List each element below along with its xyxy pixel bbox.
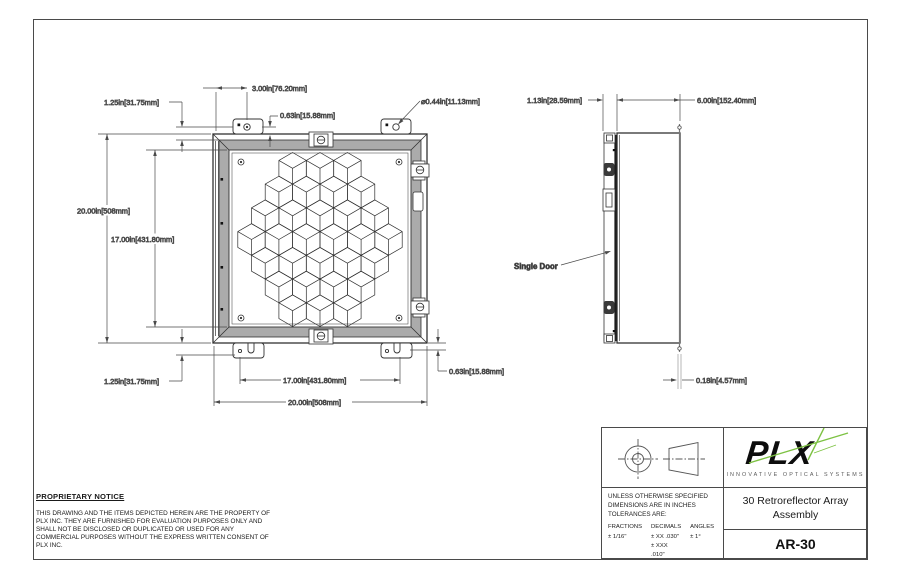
title-block: UNLESS OTHERWISE SPECIFIED DIMENSIONS AR… (601, 427, 867, 559)
logo-tagline: INNOVATIVE OPTICAL SYSTEMS (724, 472, 867, 478)
tol-angles-col: ANGLES ± 1° (690, 523, 714, 559)
part-number: AR-30 (775, 536, 815, 552)
dim-125-bottom: 1.25in[31.75mm] (104, 377, 159, 386)
dim-17-left: 17.00in[431.80mm] (111, 235, 174, 244)
dim-3in: 3.00in[76.20mm] (252, 84, 307, 93)
tol-fractions-col: FRACTIONS ± 1/16" (608, 523, 642, 559)
dim-063-top: 0.63in[15.88mm] (280, 111, 335, 120)
tol-header-line: DIMENSIONS ARE IN INCHES (608, 502, 717, 511)
rear-flange (678, 124, 681, 352)
dim-20-bottom: 20.00in[508mm] (288, 398, 341, 407)
part-number-cell: AR-30 (724, 530, 867, 558)
notice-line: THIS DRAWING AND THE ITEMS DEPICTED HERE… (36, 510, 336, 518)
side-view (603, 124, 681, 352)
projection-symbol-cell (602, 428, 724, 488)
dim-20-left: 20.00in[508mm] (77, 207, 130, 216)
notice-line: PLX INC. THEY ARE FURNISHED FOR EVALUATI… (36, 518, 336, 526)
bottom-mounting-tabs (233, 343, 412, 358)
tolerance-cell: UNLESS OTHERWISE SPECIFIED DIMENSIONS AR… (602, 488, 724, 558)
logo-cell: PLX INNOVATIVE OPTICAL SYSTEMS (724, 428, 867, 488)
drawing-title-cell: 30 Retroreflector Array Assembly (724, 488, 867, 530)
dim-018: 0.18in[4.57mm] (696, 376, 747, 385)
door-handle (413, 192, 423, 211)
dim-17-bottom: 17.00in[431.80mm] (283, 376, 346, 385)
notice-line: COMMERCIAL PURPOSES WITHOUT THE EXPRESS … (36, 534, 336, 542)
third-angle-projection-icon (602, 428, 724, 488)
side-fittings (603, 133, 615, 343)
dim-125-top: 1.25in[31.75mm] (104, 98, 159, 107)
drawing-sheet: { "drawing": { "front": { "dim_width_tab… (0, 0, 900, 582)
proprietary-notice-title: PROPRIETARY NOTICE (36, 492, 336, 501)
tol-decimals-col: DECIMALS ± XX .030" ± XXX .010" (651, 523, 681, 559)
dim-6in: 6.00in[152.40mm] (697, 96, 756, 105)
tol-header-line: UNLESS OTHERWISE SPECIFIED (608, 493, 717, 502)
dim-hole-dia: ⌀0.44in[11.13mm] (421, 97, 480, 106)
dim-113: 1.13in[28.59mm] (527, 96, 582, 105)
single-door-label: Single Door (514, 262, 558, 271)
dim-063-bottom: 0.63in[15.88mm] (449, 367, 504, 376)
front-view (213, 119, 429, 358)
notice-line: SHALL NOT BE DISCLOSED OR DUPLICATED OR … (36, 526, 336, 534)
notice-line: PLX INC. (36, 542, 336, 550)
drawing-title-line2: Assembly (743, 509, 849, 522)
drawing-title-line1: 30 Retroreflector Array (743, 495, 849, 508)
proprietary-notice: PROPRIETARY NOTICE THIS DRAWING AND THE … (36, 492, 336, 550)
tol-header-line: TOLERANCES ARE: (608, 511, 717, 520)
logo-star-icon (724, 428, 867, 488)
